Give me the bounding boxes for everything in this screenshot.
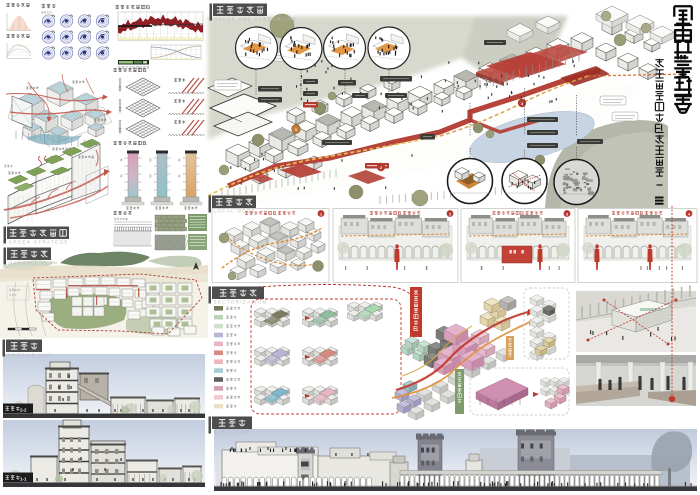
svg-text:SPACE AND STREAMLINE: SPACE AND STREAMLINE <box>215 17 298 22</box>
svg-text:ELEVATION: ELEVATION <box>214 430 251 435</box>
svg-text:PROFILE MAP: PROFILE MAP <box>8 353 53 358</box>
svg-text:2: 2 <box>449 212 451 216</box>
svg-text:LOCAL NODE: LOCAL NODE <box>214 209 256 214</box>
svg-text:OVERALL PLAN: OVERALL PLAN <box>9 261 59 266</box>
svg-text:3: 3 <box>566 212 568 216</box>
svg-text:1: 1 <box>320 212 322 216</box>
svg-text:GREEN STRATEGE: GREEN STRATEGE <box>9 240 69 245</box>
svg-text:2-2: 2-2 <box>20 408 27 413</box>
svg-text:SECTORIZATION: SECTORIZATION <box>214 300 268 305</box>
svg-text:1-1: 1-1 <box>20 477 27 482</box>
